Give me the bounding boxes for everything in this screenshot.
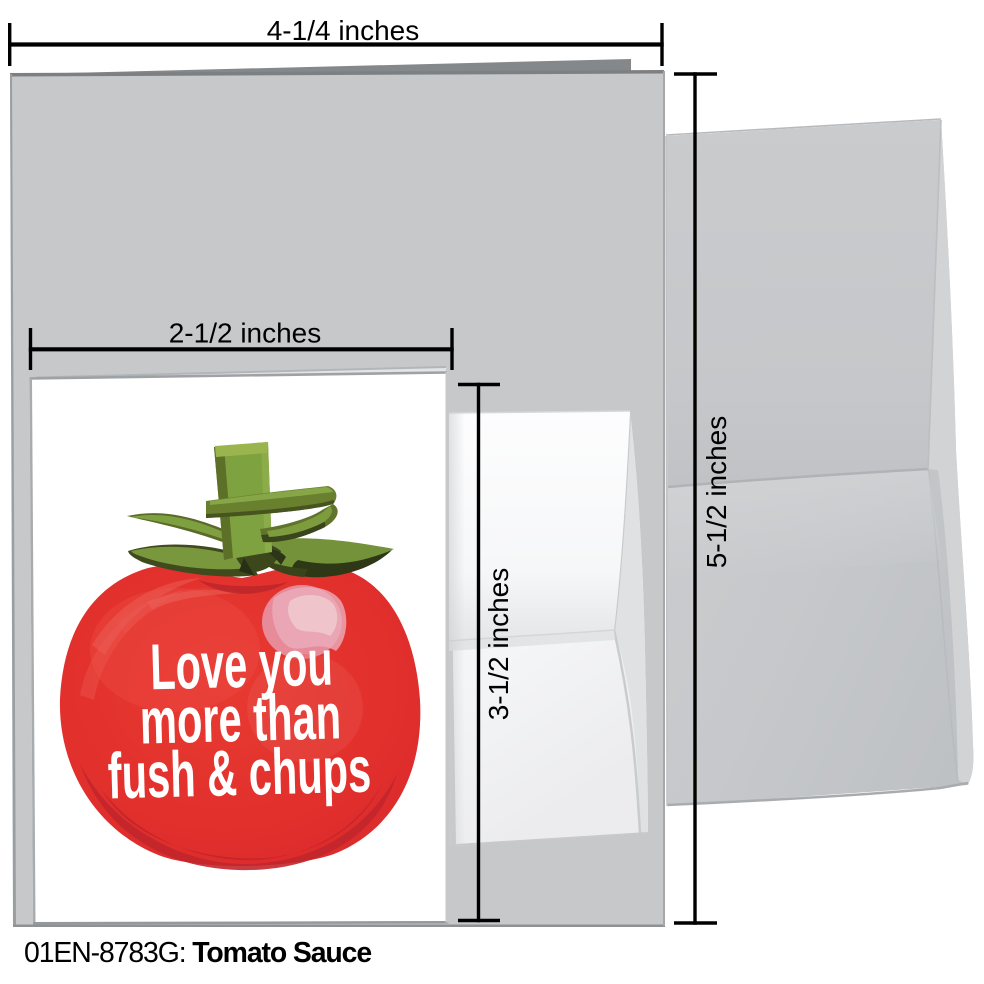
- svg-text:fush & chups: fush & chups: [107, 733, 372, 813]
- svg-text:01EN-8783G: Tomato Sauce: 01EN-8783G: Tomato Sauce: [24, 937, 371, 969]
- svg-text:3-1/2 inches: 3-1/2 inches: [483, 568, 514, 721]
- svg-text:2-1/2 inches: 2-1/2 inches: [169, 318, 322, 349]
- svg-text:5-1/2 inches: 5-1/2 inches: [701, 416, 732, 569]
- svg-text:4-1/4 inches: 4-1/4 inches: [267, 15, 420, 46]
